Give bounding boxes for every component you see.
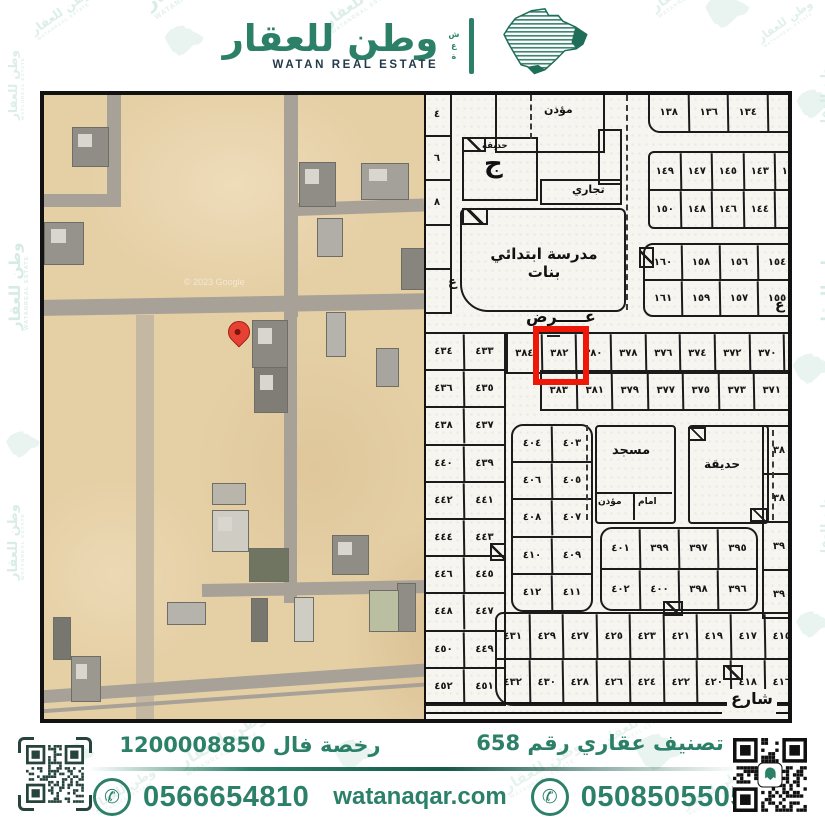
entrance-marker — [490, 543, 506, 561]
plot-cell: ٣٧٧ — [646, 372, 682, 410]
plot-cell: ١٦١ — [645, 281, 682, 316]
plot-cell: ٤٠٤ — [513, 426, 552, 462]
plot-cell: ٤٣٦ — [426, 371, 463, 407]
plot-cell: ٣٦٨ — [783, 334, 788, 373]
qr-corner-bracket — [18, 795, 34, 811]
label-mosque: مسجد — [612, 443, 650, 458]
emblem-divider-bar — [469, 18, 474, 74]
plot-cell — [766, 95, 788, 131]
qr-corner-bracket — [76, 795, 92, 811]
plot-cell: ٤٤٥ — [463, 557, 505, 593]
plot-cell: ٣٩ — [764, 571, 788, 618]
plot-block: ٤٠٤٤٠٣٤٠٦٤٠٥٤٠٨٤٠٧٤١٠٤٠٩٤١٢٤١١ — [511, 424, 593, 612]
plot-cell: ٤٤٤ — [426, 520, 463, 556]
plot-cell: ٤٣٤ — [426, 334, 463, 370]
plot-cell: ٣٩٩ — [639, 529, 679, 569]
plot-cell: ٤٤٦ — [426, 557, 463, 593]
plot-cell: ٤٠٢ — [602, 570, 640, 610]
label-commercial: تجاري — [572, 183, 605, 196]
qr-corner-bracket — [18, 737, 34, 753]
qr-code-left — [26, 745, 84, 803]
phone-right: 0508505505 — [581, 781, 747, 814]
label-park: حديقة — [704, 457, 740, 471]
building — [212, 483, 246, 505]
plot-cell: ٤١١ — [551, 574, 592, 610]
road — [107, 95, 121, 205]
plot-cell: ١٤٧ — [679, 153, 711, 190]
plot-cell: ١٥٨ — [681, 245, 720, 280]
emblem-side-letters: شعة — [448, 31, 459, 61]
building — [53, 617, 71, 660]
license-text: رخصة فال 1200008850 — [100, 733, 400, 757]
plot-block: ١٦٠١٥٨١٥٦١٥٤١٦١١٥٩١٥٧١٥٥ — [643, 243, 788, 317]
street-line — [776, 712, 788, 714]
mosque-divider — [633, 492, 635, 520]
footer: تصنيف عقاري رقم 658 رخصة فال 1200008850 … — [0, 723, 825, 823]
plot-cell: ٤٣٧ — [463, 408, 505, 444]
satellite-image: © 2023 Google — [44, 95, 424, 719]
plot-cell: ٣٧٨ — [610, 334, 645, 373]
plot-cell: ٣٧٤ — [679, 334, 714, 373]
whatsapp-icon: ✆ — [531, 778, 569, 816]
header: وطن للعقار WATAN REAL ESTATE شعة — [0, 0, 825, 91]
building — [294, 597, 314, 642]
classification-text: تصنيف عقاري رقم 658 — [455, 731, 745, 755]
building — [71, 656, 101, 702]
plot-cell: ٤٢١ — [662, 614, 696, 659]
plot-cell: ٤١٢ — [513, 574, 552, 610]
plot-block: ٤٣٤٤٣٣٤٣٦٤٣٥٤٣٨٤٣٧٤٤٠٤٣٩٤٤٢٤٤١٤٤٤٤٤٣٤٤٦٤… — [426, 332, 506, 706]
plot-cell: ١٣٦ — [687, 95, 727, 131]
building — [369, 590, 399, 632]
plot-block: ١٤٩١٤٧١٤٥١٤٣١٤١١٥٠١٤٨١٤٦١٤٤ — [648, 151, 788, 229]
label-muezzin-top: مؤذن — [544, 103, 573, 116]
image-frame: © 2023 Google ٤٦٨١٣٨١٣٦١٣٤١٤٩١٤٧١٤٥١٤٣١٤… — [40, 91, 792, 723]
brand: وطن للعقار WATAN REAL ESTATE — [223, 20, 439, 72]
building — [72, 127, 109, 167]
plot-cell: ٤٥٠ — [426, 631, 463, 667]
plot-cell: ٣٧٠ — [748, 334, 783, 373]
plot-cell: ٤ — [426, 95, 450, 135]
plot-cell: ١٤٨ — [679, 191, 711, 228]
plot-cell: ٣٩٦ — [717, 570, 757, 610]
plot-cell: ١٤٤ — [742, 191, 774, 228]
plot-cell: ٣٩٨ — [678, 570, 718, 610]
plot-cell: ٤٠٦ — [513, 463, 552, 499]
watermark-map-icon — [792, 88, 825, 126]
road — [44, 293, 424, 316]
entrance-marker — [723, 665, 743, 680]
plot-cell: ١٣٨ — [650, 95, 688, 131]
entrance-marker — [750, 508, 768, 522]
plot-cell: ٤٢٥ — [595, 614, 629, 659]
highlighted-plot-382 — [533, 326, 589, 385]
plot-cell: ٤٣٢ — [497, 660, 529, 705]
plot-cell — [426, 225, 450, 268]
label-imam: امام — [638, 497, 657, 507]
qr-code-right — [733, 738, 807, 812]
building — [212, 510, 249, 552]
building — [252, 320, 288, 368]
map-feature — [598, 129, 622, 185]
map-feature — [595, 425, 676, 524]
road — [136, 315, 154, 719]
street-letter: ع — [775, 297, 785, 313]
plot-cell: ٦ — [426, 137, 450, 180]
building — [251, 598, 268, 642]
footer-divider-line — [88, 767, 740, 771]
plot-cell: ١٤١ — [774, 153, 788, 190]
website-url: watanaqar.com — [333, 783, 506, 811]
whatsapp-icon: ✆ — [93, 778, 131, 816]
building — [254, 367, 288, 413]
street-label-arad: عـــــرض — [526, 307, 596, 326]
building — [361, 163, 409, 200]
qr-corner-bracket — [76, 737, 92, 753]
plot-cell: ٣٧٣ — [717, 372, 753, 410]
plat-map: ٤٦٨١٣٨١٣٦١٣٤١٤٩١٤٧١٤٥١٤٣١٤١١٥٠١٤٨١٤٦١٤٤١… — [426, 95, 788, 719]
building — [332, 535, 369, 575]
plot-cell: ٤١٧ — [730, 614, 764, 659]
plot-cell: ٤١٠ — [513, 537, 552, 573]
phone-left: 0566654810 — [143, 781, 309, 814]
contact-row: ✆ 0566654810 watanaqar.com ✆ 0508505505 — [110, 775, 730, 819]
plot-cell: ١٤٦ — [711, 191, 743, 228]
plot-cell: ٣٧٢ — [714, 334, 749, 373]
plot-cell: ٤٤٠ — [426, 445, 463, 481]
plot-cell: ٣٧١ — [753, 372, 788, 410]
plot-cell: ١٣٤ — [727, 95, 767, 131]
plot-cell: ٤٢٦ — [595, 660, 629, 705]
building — [167, 602, 206, 625]
label-park-letter: ج — [484, 149, 503, 179]
brand-watermark: وطن للعقارWATANREAL ESTATE — [6, 243, 30, 330]
plot-cell: ٤٣٥ — [463, 371, 505, 407]
plot-cell: ١٥٧ — [719, 281, 758, 316]
brand-english-title: WATAN REAL ESTATE — [223, 59, 439, 71]
plot-cell: ٣٩ — [764, 523, 788, 570]
entrance-marker — [639, 247, 654, 268]
building — [299, 162, 336, 207]
plot-block: ١٣٨١٣٦١٣٤ — [648, 95, 788, 133]
plot-cell: ١٤٩ — [650, 153, 680, 190]
plot-cell: ٤٤١ — [463, 482, 505, 518]
flyer-canvas: وطن للعقار WATAN REAL ESTATE شعة © 2023 … — [0, 0, 825, 823]
plot-cell: ٤١٥ — [763, 614, 788, 659]
plot-cell: ٤٠٩ — [551, 537, 592, 573]
emblem-letter: ع — [451, 42, 456, 50]
plot-cell: ٤١٩ — [696, 614, 730, 659]
entrance-marker — [462, 208, 488, 225]
plot-cell: ٤٢٣ — [629, 614, 663, 659]
plot-cell: ٣٧٦ — [644, 334, 679, 373]
building — [397, 583, 416, 632]
entrance-marker — [688, 427, 706, 441]
plot-cell: ٤٣٣ — [463, 334, 505, 370]
plot-cell — [426, 270, 450, 313]
plot-cell: ٤٤٨ — [426, 594, 463, 630]
dashed-street — [626, 95, 628, 310]
dashed-street — [586, 425, 588, 520]
plot-cell: ٤٠١ — [602, 529, 640, 569]
plot-cell: ٣٧٥ — [682, 372, 718, 410]
plot-cell: ١٤٥ — [711, 153, 743, 190]
dashed-street — [772, 430, 774, 520]
plot-cell: ٤٣١ — [497, 614, 529, 659]
sand-patch — [84, 95, 384, 295]
plot-cell: ١٥٦ — [719, 245, 758, 280]
entrance-marker — [462, 137, 486, 152]
brand-watermark: وطن للعقارWATANREAL ESTATE — [818, 490, 825, 560]
plot-cell: ٤٠٨ — [513, 500, 552, 536]
brand-watermark: وطن للعقارWATANREAL ESTATE — [6, 504, 26, 580]
building — [326, 312, 346, 357]
plot-cell: ٤٣٩ — [463, 445, 505, 481]
building — [44, 222, 84, 265]
plot-cell: ١٥٤ — [757, 245, 788, 280]
brand-watermark: وطن للعقارWATANREAL ESTATE — [818, 243, 825, 330]
road — [44, 194, 121, 207]
plot-cell: ٤٢٢ — [662, 660, 696, 705]
plot-cell: ٤٣٨ — [426, 408, 463, 444]
plot-cell: ٤٥٢ — [426, 668, 463, 704]
entrance-marker — [663, 601, 683, 616]
emblem-letter: ة — [452, 53, 457, 61]
plot-cell — [774, 191, 788, 228]
plot-cell: ٤٢٤ — [629, 660, 663, 705]
building — [317, 218, 343, 257]
label-school: مدرسة ابتدائي بنات — [484, 245, 604, 281]
saudi-map-icon — [484, 6, 602, 86]
plot-cell: ١٥٩ — [681, 281, 720, 316]
street-line — [426, 712, 722, 714]
watermark-map-icon — [2, 430, 42, 465]
plot-cell: ٨ — [426, 181, 450, 224]
plot-cell: ٤٢٧ — [562, 614, 596, 659]
building — [401, 248, 424, 290]
dashed-street — [530, 95, 532, 139]
watermark-map-icon — [788, 352, 825, 392]
plot-cell: ١٤٣ — [742, 153, 774, 190]
plot-cell: ٤٤٢ — [426, 482, 463, 518]
plot-cell: ٤٣٠ — [528, 660, 562, 705]
plot-cell: ٣٧٩ — [611, 372, 647, 410]
plot-cell: ١٥٠ — [650, 191, 680, 228]
plot-block: ٤٠١٣٩٩٣٩٧٣٩٥٤٠٢٤٠٠٣٩٨٣٩٦ — [600, 527, 758, 611]
label-muezzin: مؤذن — [598, 497, 622, 507]
emblem-letter: ش — [448, 31, 459, 39]
street-label-share: شارع — [727, 689, 777, 708]
plot-cell: ٣٩٧ — [678, 529, 718, 569]
watermark-map-icon — [792, 610, 825, 645]
plot-cell: ٤٢٨ — [562, 660, 596, 705]
street-letter: ع — [448, 275, 457, 290]
plot-cell: ٣٩٥ — [717, 529, 757, 569]
plot-cell: ٤٢٩ — [528, 614, 562, 659]
building — [249, 548, 289, 582]
brand-arabic-title: وطن للعقار — [223, 20, 439, 59]
building — [376, 348, 399, 387]
